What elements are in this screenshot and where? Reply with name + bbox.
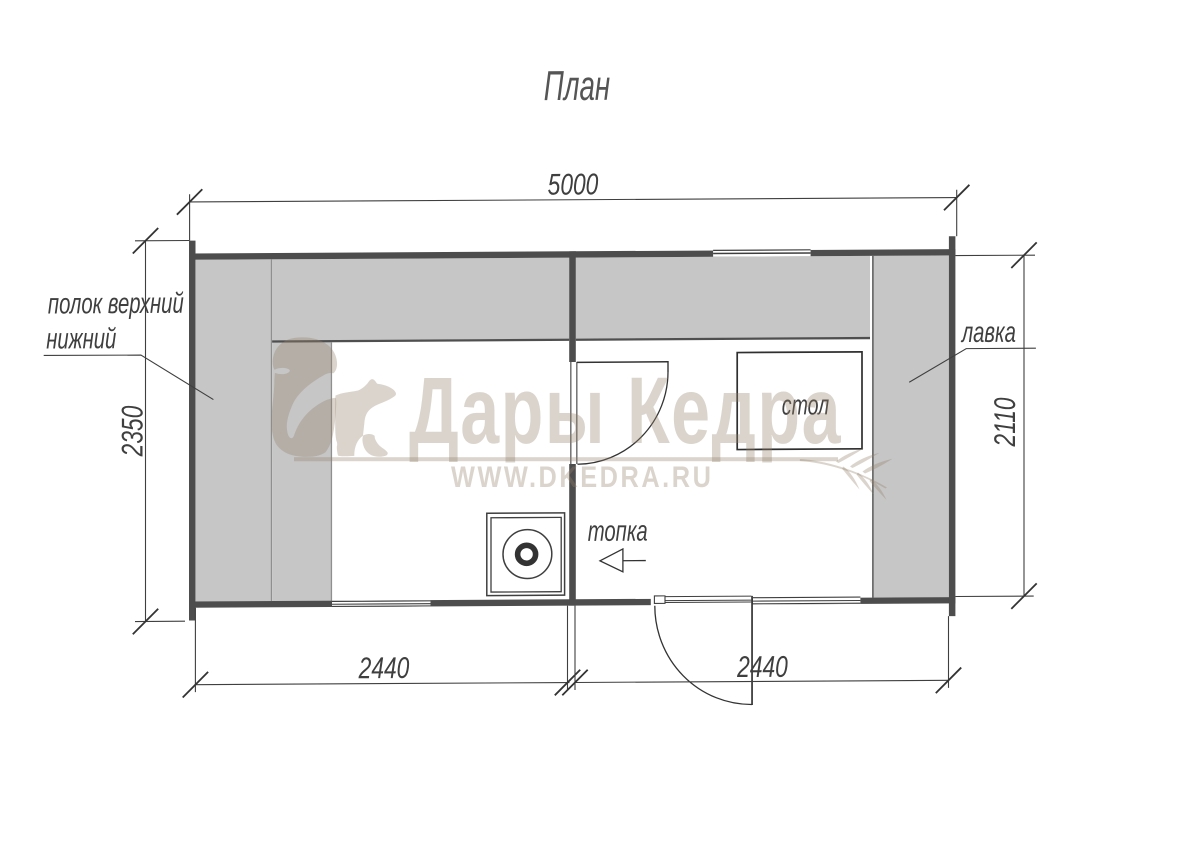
svg-text:Дары Кедра: Дары Кедра — [409, 356, 842, 463]
svg-text:WWW.DKEDRA.RU: WWW.DKEDRA.RU — [451, 460, 713, 493]
